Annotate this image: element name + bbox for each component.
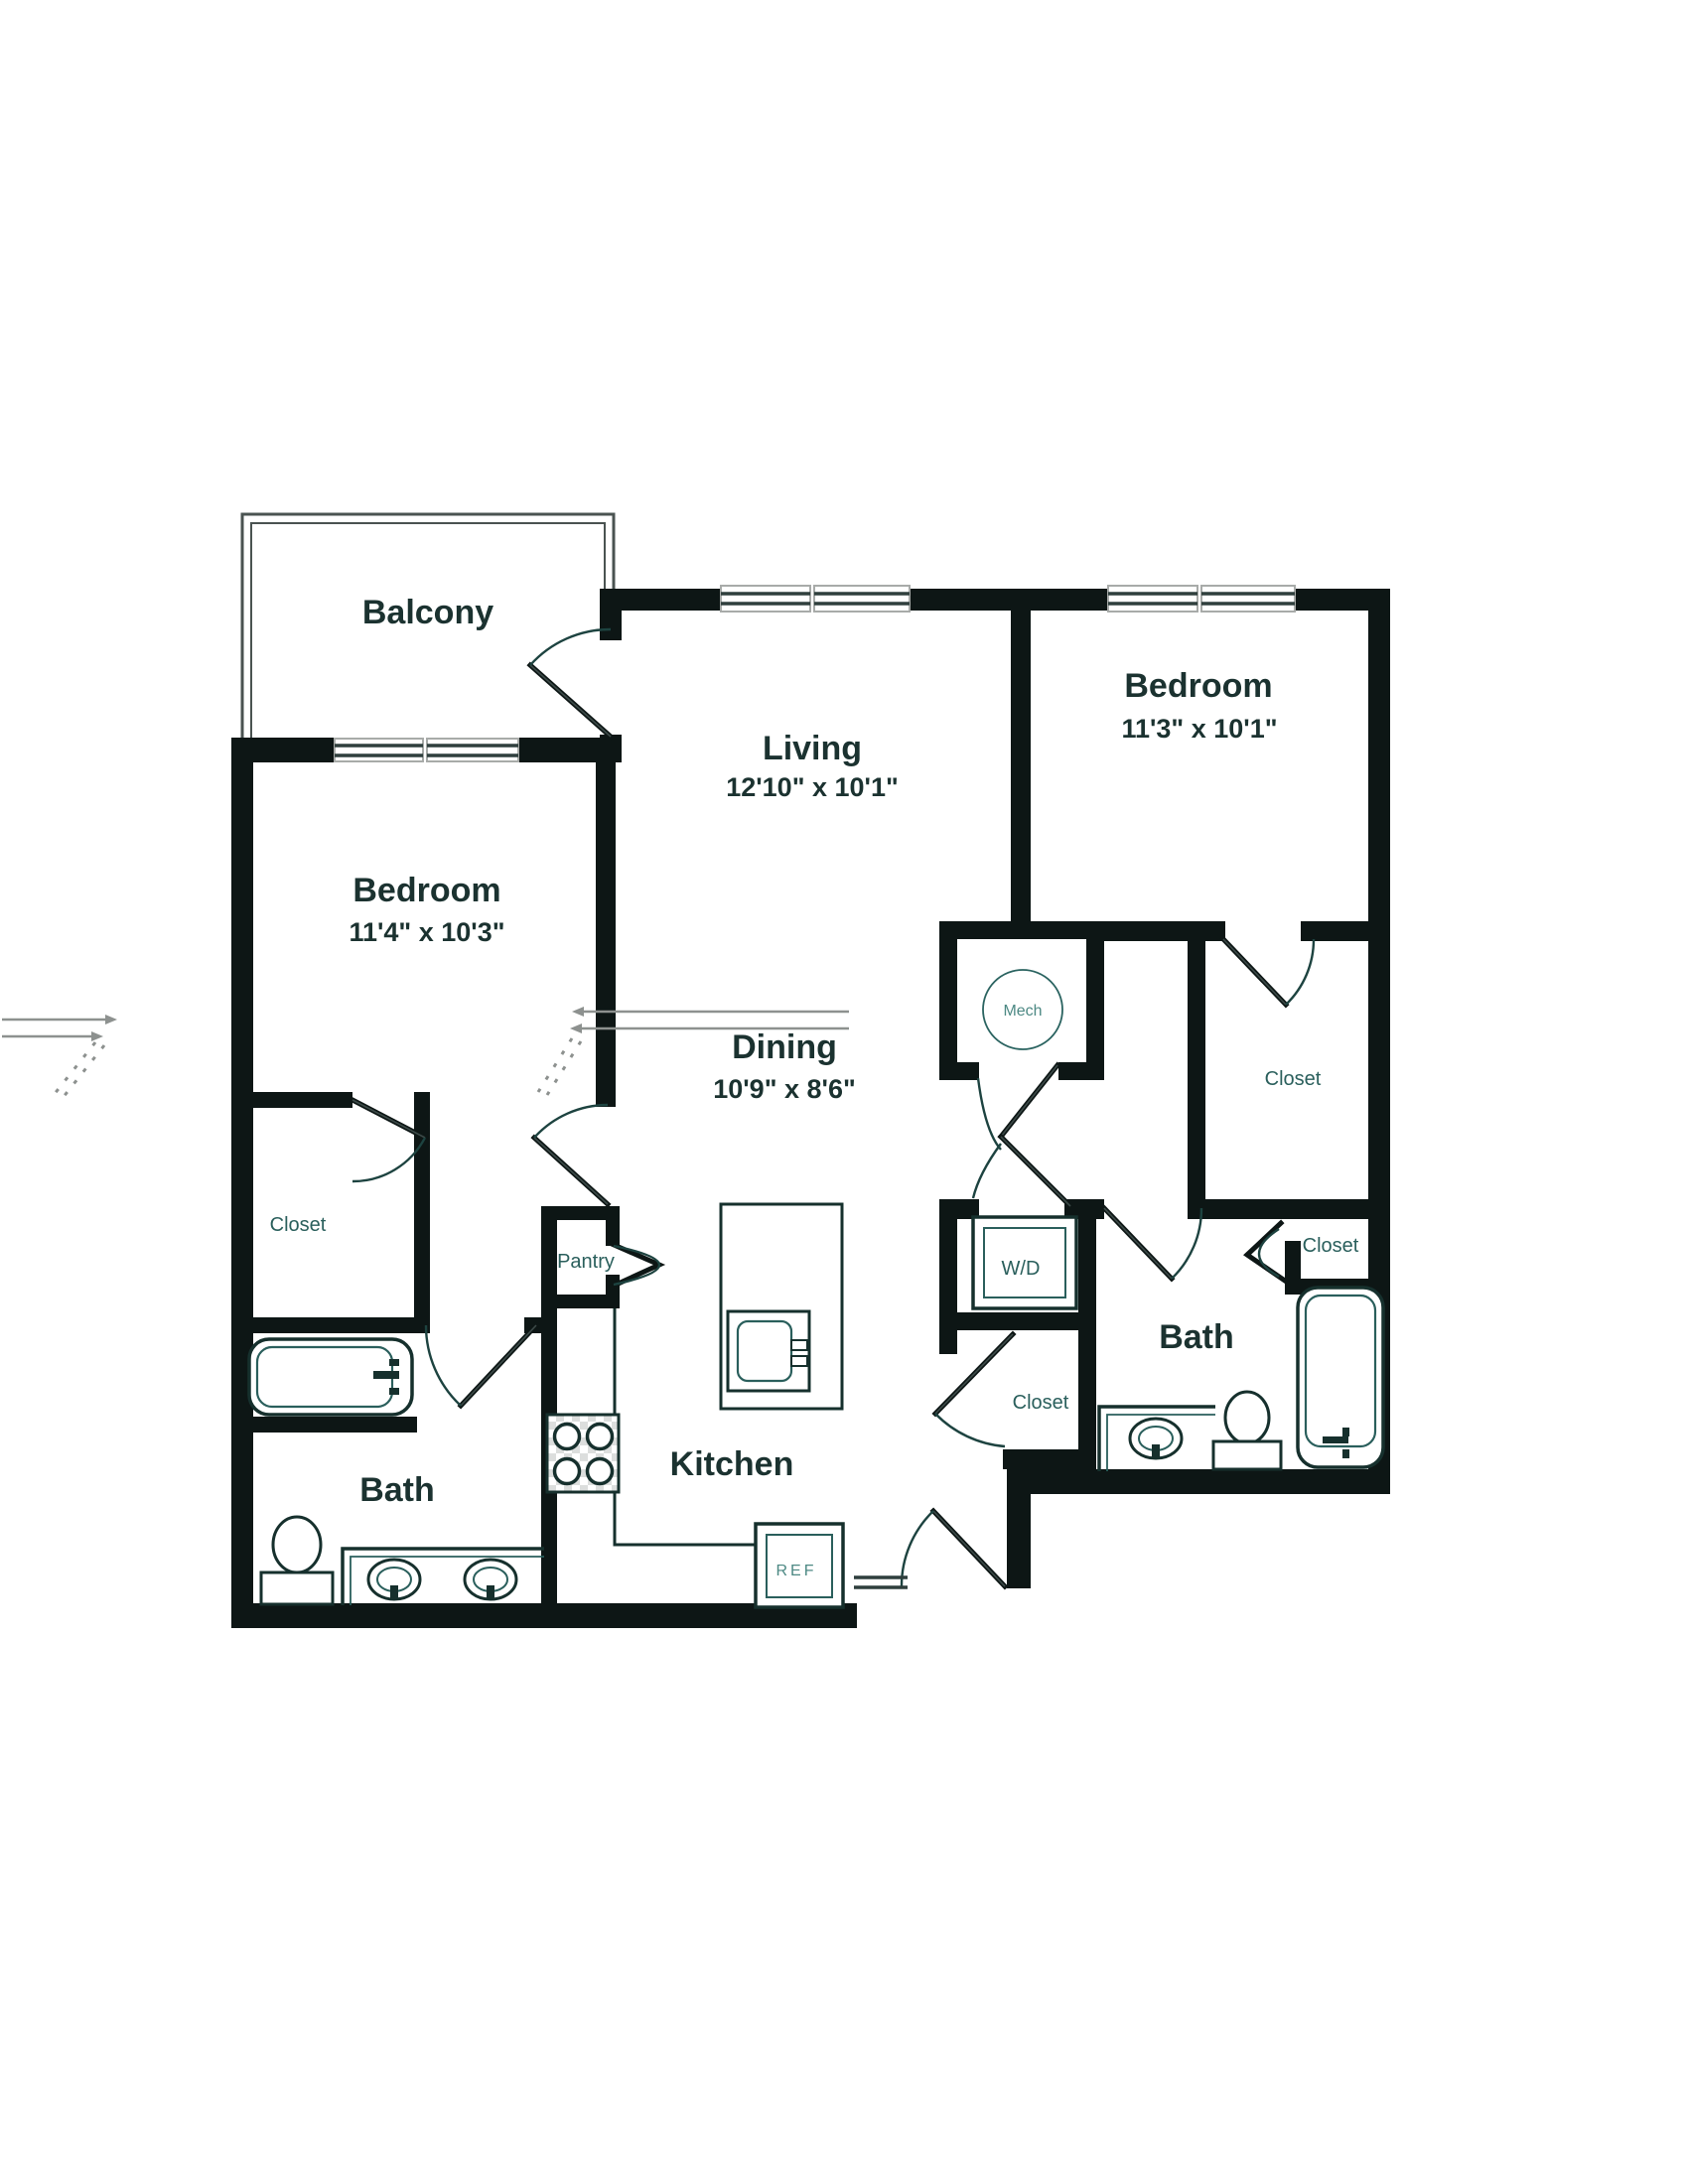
vanity-left-icon [343, 1549, 544, 1605]
room-dims-bedroom-left: 11'4" x 10'3" [349, 917, 504, 947]
room-dims-dining: 10'9" x 8'6" [713, 1074, 856, 1104]
label-closet-entry: Closet [1013, 1392, 1069, 1414]
room-label-living: Living [763, 730, 862, 767]
vanity-right-icon [1099, 1407, 1215, 1471]
door-bedroom-left [534, 1105, 608, 1204]
door-closet-bedroom-right [1223, 939, 1314, 1005]
door-balcony [530, 629, 611, 737]
room-label-dining: Dining [732, 1028, 837, 1066]
room-dims-bedroom-right: 11'3" x 10'1" [1121, 714, 1277, 744]
room-label-bedroom-left: Bedroom [352, 872, 500, 909]
bathtub-right-icon [1298, 1288, 1383, 1467]
label-refrigerator: REF [776, 1563, 817, 1579]
room-label-kitchen: Kitchen [670, 1445, 794, 1483]
door-entry [854, 1511, 1005, 1587]
room-dims-living: 12'10" x 10'1" [726, 772, 899, 802]
bathtub-left-icon [249, 1339, 412, 1415]
kitchen-island-icon [721, 1204, 842, 1409]
floor-plan-drawing: Balcony Living 12'10" x 10'1" Bedroom 11… [0, 0, 1688, 2184]
cooktop-icon [547, 1415, 619, 1492]
door-hall [973, 1137, 1070, 1206]
door-bath-right [1104, 1208, 1201, 1279]
window-bedroom-right [1108, 586, 1295, 612]
room-label-bath-left: Bath [359, 1471, 435, 1509]
balcony-railing [242, 514, 614, 756]
room-label-bedroom-right: Bedroom [1124, 667, 1272, 705]
door-closet-bath-right [1247, 1223, 1285, 1281]
window-living [721, 586, 910, 612]
label-closet-bath-right: Closet [1303, 1235, 1359, 1257]
window-bedroom-left [335, 739, 518, 761]
floor-plan-page: Balcony Living 12'10" x 10'1" Bedroom 11… [0, 0, 1688, 2184]
toilet-right-icon [1213, 1392, 1281, 1469]
label-closet-bedroom-left: Closet [270, 1214, 327, 1236]
toilet-left-icon [261, 1517, 333, 1604]
label-pantry: Pantry [557, 1251, 615, 1273]
door-mech [978, 1065, 1057, 1150]
room-label-balcony: Balcony [362, 594, 493, 631]
label-mech: Mech [1003, 1003, 1042, 1020]
door-bath-left [426, 1325, 536, 1406]
label-closet-bedroom-right: Closet [1265, 1068, 1322, 1090]
room-label-bath-right: Bath [1159, 1318, 1234, 1356]
label-washer-dryer: W/D [1002, 1258, 1041, 1280]
